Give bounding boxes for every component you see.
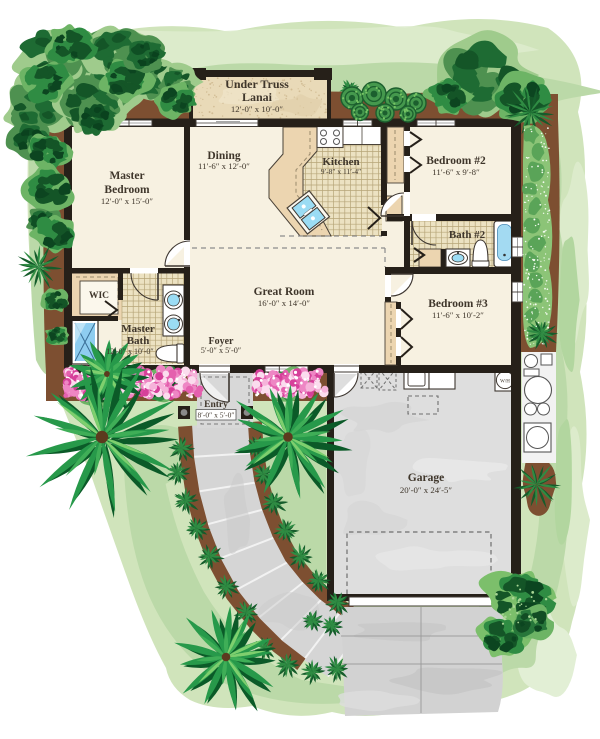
- svg-text:9′-8″ x 11′-4″: 9′-8″ x 11′-4″: [321, 167, 362, 176]
- svg-text:5′-0″ x 5′-0″: 5′-0″ x 5′-0″: [201, 346, 241, 355]
- svg-text:12′-0″ x 10′-0″: 12′-0″ x 10′-0″: [231, 104, 284, 114]
- svg-text:Lanai: Lanai: [242, 90, 273, 104]
- svg-text:Garage: Garage: [408, 472, 444, 484]
- svg-text:11′-6″ x 10′-2″: 11′-6″ x 10′-2″: [432, 310, 484, 320]
- svg-text:11′-6″ x 12′-0″: 11′-6″ x 12′-0″: [198, 161, 250, 171]
- svg-text:Bedroom: Bedroom: [104, 184, 150, 196]
- svg-text:Under Truss: Under Truss: [225, 77, 289, 91]
- svg-text:WIC: WIC: [89, 291, 109, 301]
- svg-text:Bedroom #2: Bedroom #2: [426, 155, 486, 167]
- svg-text:12′-0″ x 10′-0″: 12′-0″ x 10′-0″: [106, 347, 154, 356]
- svg-text:12′-0″ x 15′-0″: 12′-0″ x 15′-0″: [101, 196, 154, 206]
- svg-text:W/H: W/H: [500, 380, 510, 385]
- svg-text:8′-0″ x 5′-0″: 8′-0″ x 5′-0″: [197, 411, 234, 420]
- svg-text:Master: Master: [109, 170, 144, 182]
- svg-text:Bath: Bath: [127, 335, 150, 347]
- svg-text:11′-6″ x 9′-8″: 11′-6″ x 9′-8″: [432, 167, 480, 177]
- svg-text:Bedroom #3: Bedroom #3: [428, 298, 488, 310]
- svg-text:Entry: Entry: [204, 400, 228, 410]
- svg-text:Great Room: Great Room: [254, 286, 315, 298]
- svg-text:Bath #2: Bath #2: [449, 229, 486, 241]
- svg-text:20′-0″ x 24′-5″: 20′-0″ x 24′-5″: [400, 485, 453, 495]
- svg-text:16′-0″ x 14′-0″: 16′-0″ x 14′-0″: [258, 298, 311, 308]
- svg-text:Master: Master: [121, 323, 155, 335]
